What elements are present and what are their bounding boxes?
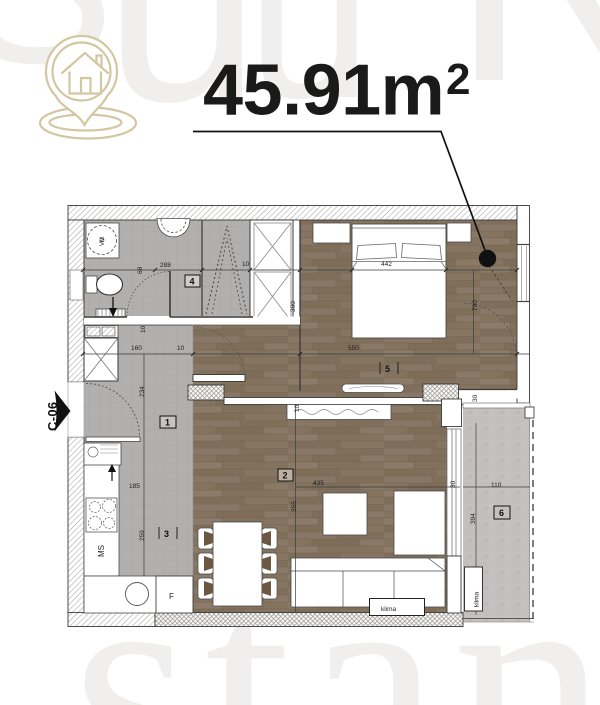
svg-text:klima: klima <box>474 591 481 607</box>
svg-text:10: 10 <box>140 325 147 333</box>
svg-text:F: F <box>169 592 174 601</box>
svg-text:30: 30 <box>472 394 479 402</box>
svg-text:300: 300 <box>290 301 297 312</box>
svg-text:2: 2 <box>446 55 470 104</box>
svg-text:1: 1 <box>165 418 170 428</box>
svg-text:4: 4 <box>190 277 195 287</box>
svg-text:68: 68 <box>137 266 144 274</box>
svg-text:355: 355 <box>291 501 298 512</box>
svg-text:5: 5 <box>385 364 390 374</box>
svg-text:442: 442 <box>381 261 392 268</box>
svg-text:10: 10 <box>242 261 250 268</box>
svg-text:394: 394 <box>470 513 477 524</box>
svg-text:klima: klima <box>381 606 397 613</box>
svg-text:R: R <box>452 0 600 142</box>
svg-text:259: 259 <box>139 530 146 541</box>
svg-text:2: 2 <box>283 471 288 481</box>
svg-text:MS: MS <box>97 545 106 557</box>
svg-text:160: 160 <box>131 345 142 352</box>
svg-text:30: 30 <box>450 480 457 488</box>
svg-text:6: 6 <box>499 508 504 518</box>
svg-text:234: 234 <box>139 386 146 397</box>
svg-text:10: 10 <box>177 345 185 352</box>
svg-text:288: 288 <box>160 262 171 269</box>
svg-text:10: 10 <box>294 404 301 412</box>
svg-text:550: 550 <box>348 345 359 352</box>
svg-text:790: 790 <box>472 300 479 311</box>
svg-text:45.91m: 45.91m <box>203 51 444 131</box>
svg-text:3: 3 <box>164 529 169 539</box>
svg-text:110: 110 <box>491 482 502 489</box>
svg-text:VM: VM <box>100 237 106 246</box>
svg-text:435: 435 <box>313 480 324 487</box>
svg-text:185: 185 <box>129 483 140 490</box>
